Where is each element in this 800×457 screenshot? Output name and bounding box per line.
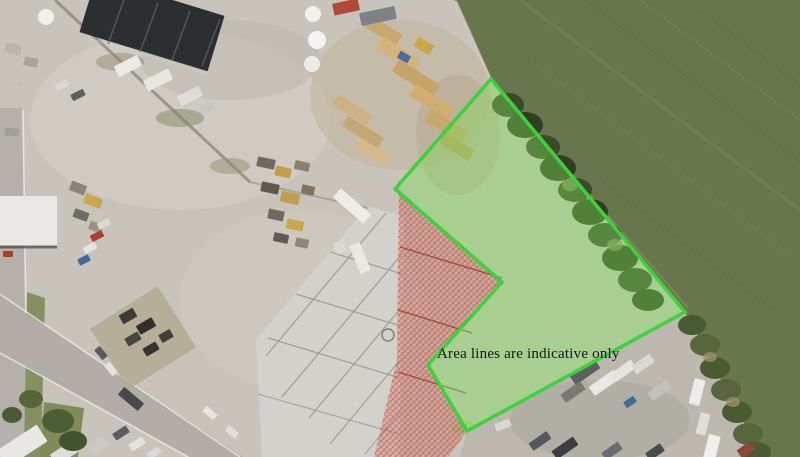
hedge — [690, 334, 720, 356]
silo-tank — [304, 56, 320, 72]
scrub-gap — [703, 352, 717, 362]
silo-tank — [305, 6, 321, 22]
scrub-gap — [726, 397, 740, 407]
tree — [2, 407, 22, 423]
weeds — [156, 109, 204, 127]
tree — [42, 409, 74, 433]
yard-clutter — [5, 127, 20, 136]
weeds — [210, 158, 250, 174]
white-building-roof — [0, 196, 57, 246]
silo-tank — [308, 31, 326, 49]
aerial-photo: Area lines are indicative only — [0, 0, 800, 457]
white-tank — [38, 9, 54, 25]
indicative-note: Area lines are indicative only — [437, 346, 620, 362]
hedge — [733, 423, 763, 445]
hedge — [678, 315, 706, 335]
red-car — [3, 251, 13, 257]
tree — [19, 390, 43, 408]
aerial-photo-container: Area lines are indicative only — [0, 0, 800, 457]
tree — [59, 431, 87, 451]
